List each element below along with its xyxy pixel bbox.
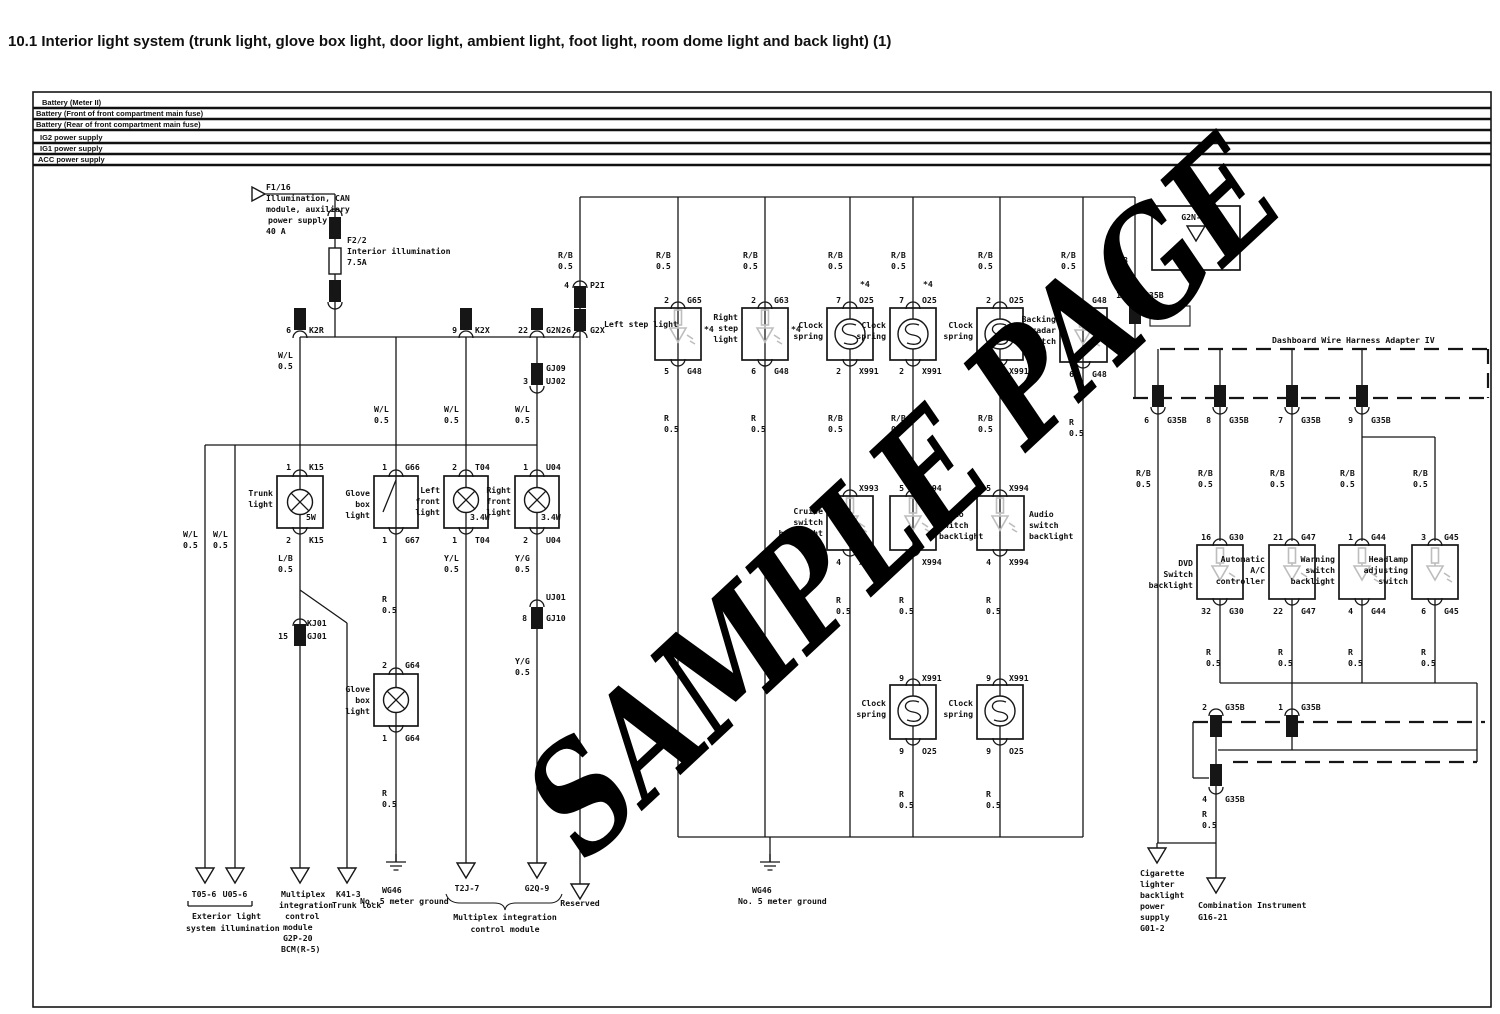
label-comp-dvd-ct: G30 (1229, 532, 1244, 542)
label-conn-kj01-p: 15 (278, 631, 288, 641)
label-wire-sz: 0.5 (664, 424, 679, 434)
label-comp-ac-l3: controller (1216, 576, 1265, 586)
label-conn-g35b6-p: 6 (1144, 415, 1149, 425)
label-comp-right_front-ct: U04 (546, 462, 561, 472)
label-fuses-f22-id: F2/2 (347, 235, 367, 245)
connector-block (531, 607, 543, 629)
label-dest-cig-l5: supply (1140, 912, 1170, 922)
label-conn-gj09-b: UJ02 (546, 376, 566, 386)
label-wire-wl: W/L (278, 350, 293, 360)
label-wire-sz: 0.5 (1340, 479, 1355, 489)
label-comp-cs4-l2: spring (856, 709, 886, 719)
label-comp-cs2-l2: spring (856, 331, 886, 341)
label-comp-step_l-cb: G48 (687, 366, 702, 376)
label-dest-t2j: T2J-7 (455, 883, 480, 893)
offpage-connector-icon (1148, 848, 1166, 863)
label-comp-right_front-l3: light (486, 507, 511, 517)
label-comp-left_front-l2: front (415, 496, 440, 506)
power-feed-arrow-icon (252, 187, 265, 201)
label-comp-trunk-cb: K15 (309, 535, 324, 545)
backlight-led-icon (1427, 548, 1452, 582)
connector-block (1214, 385, 1226, 407)
label-comp-step_l-ct: G65 (687, 295, 702, 305)
label-wire-yg: Y/G (515, 553, 530, 563)
label-comp-step_l-l1: Left step light (604, 319, 678, 329)
label-wire-sz: 0.5 (1136, 479, 1151, 489)
label-wire-r: R (1206, 647, 1211, 657)
label-comp-ac-cb: G47 (1301, 606, 1316, 616)
offpage-connector-icon (196, 868, 214, 883)
label-comp-warning-ct: G44 (1371, 532, 1386, 542)
label-conn-g35b6-n: G35B (1167, 415, 1187, 425)
label-conn-g35b2-n: G35B (1225, 702, 1245, 712)
label-conn-g35b8-p: 8 (1206, 415, 1211, 425)
wire (383, 480, 396, 512)
label-comp-trunk-l1: Trunk (248, 488, 273, 498)
label-fuses-f22-d: Interior illumination (347, 246, 451, 256)
label-comp-left_front-pb: 1 (452, 535, 457, 545)
connector-block (574, 286, 586, 308)
label-dest-combi-l1: Combination Instrument (1198, 900, 1307, 910)
label-wire-yl: Y/L (444, 553, 459, 563)
label-comp-left_front-l1: Left (420, 485, 440, 495)
label-ground-id: WG46 (382, 885, 402, 895)
label-wire-r: R (382, 788, 387, 798)
label-wire-r: R (1348, 647, 1353, 657)
label-comp-step_r-l2: step (718, 323, 738, 333)
label-dest-mux-l4: module (283, 922, 313, 932)
component-box (1412, 545, 1458, 599)
label-comp-right_front-l2: front (486, 496, 511, 506)
label-comp-cs1-l1: Clock (798, 320, 823, 330)
label-comp-step_r-l1: Right (713, 312, 738, 322)
label-fuses-f22-rating: 7.5A (347, 257, 367, 267)
label-wire-sz: 0.5 (444, 415, 459, 425)
label-wire-sz: 0.5 (891, 261, 906, 271)
label-comp-warning-l2: switch (1305, 565, 1335, 575)
label-comp-glove_sw-pt: 1 (382, 462, 387, 472)
label-fuses-f116-d1: Illumination, CAN (266, 193, 350, 203)
label-rails-ig1: IG1 power supply (40, 144, 103, 153)
label-wire-rb: R/B (1413, 468, 1428, 478)
label-dest-cig-l6: G01-2 (1140, 923, 1165, 933)
label-comp-dvd-l3: backlight (1149, 580, 1193, 590)
label-comp-trunk-pb: 2 (286, 535, 291, 545)
label-conn-p2i-n: P2I (590, 280, 605, 290)
fuse-body (329, 248, 341, 274)
label-wire-rb: R/B (656, 250, 671, 260)
label-conn-k2x-n: K2X (475, 325, 490, 335)
label-comp-trunk-l2: light (248, 499, 273, 509)
label-wire-sz: 0.5 (1198, 479, 1213, 489)
label-dest-ext2: system illumination (186, 923, 280, 933)
label-comp-headlamp-l2: adjusting (1364, 565, 1408, 575)
label-fuses-f116-d2: module, auxiliary (266, 204, 350, 214)
label-wire-wl: W/L (444, 404, 459, 414)
label-dest-cig-l2: lighter (1140, 879, 1175, 889)
bulb-lamp-icon (288, 490, 313, 515)
label-comp-audio2-pb: 4 (986, 557, 991, 567)
label-wire-r: R (664, 413, 669, 423)
label-comp-warning-pb: 4 (1348, 606, 1353, 616)
label-note: *4 (860, 279, 870, 289)
label-comp-glove_lamp-cb: G64 (405, 733, 420, 743)
label-fuses-f116-rating: 40 A (266, 226, 286, 236)
label-comp-headlamp-pb: 6 (1421, 606, 1426, 616)
label-dest-mic1: Multiplex integration (453, 912, 557, 922)
label-dest-cig-l1: Cigarette (1140, 868, 1184, 878)
label-comp-glove_lamp-l2: box (355, 695, 370, 705)
label-dest-cig-l4: power (1140, 901, 1165, 911)
label-conn-g35b2-p: 2 (1202, 702, 1207, 712)
label-comp-step_r-cb: G48 (774, 366, 789, 376)
label-conn-k2r-p: 6 (286, 325, 291, 335)
label-wire-sz: 0.5 (828, 261, 843, 271)
label-conn-g35b9-p: 9 (1348, 415, 1353, 425)
label-comp-cs4-l1: Clock (861, 698, 886, 708)
label-conn-g35b7-p: 7 (1278, 415, 1283, 425)
label-conn-gj09-p: 3 (523, 376, 528, 386)
label-wire-sz: 0.5 (1202, 820, 1217, 830)
label-comp-glove_lamp-pb: 1 (382, 733, 387, 743)
label-wire-sz: 0.5 (1278, 658, 1293, 668)
label-comp-glove_lamp-ct: G64 (405, 660, 420, 670)
label-comp-step_r-pb: 6 (751, 366, 756, 376)
label-wire-rb: R/B (978, 250, 993, 260)
label-wire-sz: 0.5 (1421, 658, 1436, 668)
label-comp-ac-l1: Automatic (1221, 554, 1265, 564)
label-comp-cs4-pt: 9 (899, 673, 904, 683)
label-wire-rb: R/B (743, 250, 758, 260)
clock-spring-icon (898, 696, 928, 726)
label-comp-cs5-cb: O25 (1009, 746, 1024, 756)
label-comp-cs1-pb: 2 (836, 366, 841, 376)
offpage-connector-icon (1207, 878, 1225, 893)
label-rails-battery_front: Battery (Front of front compartment main… (36, 109, 204, 118)
label-wire-sz: 0.5 (515, 415, 530, 425)
label-wire-sz: 0.5 (828, 424, 843, 434)
label-wire-r: R (1202, 809, 1207, 819)
bulb-lamp-icon (454, 488, 479, 513)
wiring-diagram: 10.1 Interior light system (trunk light,… (0, 0, 1500, 1014)
label-comp-glove_sw-l1: Glove (345, 488, 370, 498)
connector-block (1356, 385, 1368, 407)
label-wire-sz: 0.5 (444, 564, 459, 574)
bulb-lamp-icon (525, 488, 550, 513)
label-rails-battery_rear: Battery (Rear of front compartment main … (36, 120, 201, 129)
connector-block (1286, 715, 1298, 737)
label-wire-sz: 0.5 (1270, 479, 1285, 489)
label-comp-dvd-l2: Switch (1163, 569, 1193, 579)
label-dest-reserved: Reserved (560, 898, 600, 908)
label-conn-k2x-p: 9 (452, 325, 457, 335)
connector-block (1210, 764, 1222, 786)
label-wire-sz: 0.5 (1206, 658, 1221, 668)
label-dest-trunk_lock-id: K41-3 (336, 889, 361, 899)
bulb-lamp-icon (384, 688, 409, 713)
label-wire-rb: R/B (1136, 468, 1151, 478)
offpage-connector-icon (571, 884, 589, 899)
label-conn-kj01-a: KJ01 (307, 618, 327, 628)
label-wire-sz: 0.5 (558, 261, 573, 271)
label-conn-uj01-b: GJ10 (546, 613, 566, 623)
label-wire-r: R (382, 594, 387, 604)
connector-block (1152, 385, 1164, 407)
label-conn-kj01-b: GJ01 (307, 631, 327, 641)
label-wire-sz: 0.5 (751, 424, 766, 434)
connector-block (1210, 715, 1222, 737)
label-conn-p2i-p: 4 (564, 280, 569, 290)
connector-block (294, 624, 306, 646)
label-wire-rb: R/B (1340, 468, 1355, 478)
label-comp-warning-l1: Warning (1300, 554, 1335, 564)
label-dest-t05: T05-6 (192, 889, 217, 899)
label-wire-sz: 0.5 (1413, 479, 1428, 489)
label-dest-u05: U05-6 (223, 889, 248, 899)
label-conn-gj09-a: GJ09 (546, 363, 566, 373)
connector-block (531, 363, 543, 385)
label-comp-trunk-watt: 5W (306, 512, 316, 522)
label-wire-sz: 0.5 (656, 261, 671, 271)
label-wire-rb: R/B (1198, 468, 1213, 478)
label-comp-left_front-cb: T04 (475, 535, 490, 545)
label-wire-sz: 0.5 (743, 261, 758, 271)
connector-block (1286, 385, 1298, 407)
label-conn-k2r-n: K2R (309, 325, 324, 335)
label-dest-g2q: G2Q-9 (525, 883, 550, 893)
label-conn-g35b7-n: G35B (1301, 415, 1321, 425)
label-comp-right_front-pb: 2 (523, 535, 528, 545)
connector-block (460, 308, 472, 330)
label-wire-rb: R/B (891, 250, 906, 260)
backlight-led-icon (757, 310, 782, 344)
label-comp-dvd-cb: G30 (1229, 606, 1244, 616)
connector-block (294, 308, 306, 330)
label-conn-g35b8-n: G35B (1229, 415, 1249, 425)
label-wire-sz: 0.5 (213, 540, 228, 550)
label-comp-cs4-cb: O25 (922, 746, 937, 756)
offpage-connector-icon (528, 863, 546, 878)
label-comp-trunk-ct: K15 (309, 462, 324, 472)
label-comp-glove_sw-pb: 1 (382, 535, 387, 545)
label-comp-headlamp-ct: G45 (1444, 532, 1459, 542)
label-conn-g35b1-p: 1 (1278, 702, 1283, 712)
brace (446, 894, 562, 910)
label-wire-wl: W/L (515, 404, 530, 414)
label-comp-glove_lamp-l3: light (345, 706, 370, 716)
label-comp-cs1-l2: spring (793, 331, 823, 341)
label-comp-cs1-ct: O25 (859, 295, 874, 305)
ground-icon (386, 854, 406, 870)
label-comp-ac-pt: 21 (1273, 532, 1283, 542)
label-comp-glove_lamp-pt: 2 (382, 660, 387, 670)
label-comp-ac-l2: A/C (1250, 565, 1265, 575)
label-ground-id: WG46 (752, 885, 772, 895)
label-dest-mux-l6: BCM(R-5) (281, 944, 320, 954)
label-dest-mux-l1: Multiplex (281, 889, 325, 899)
label-conn-g35b4-n: G35B (1225, 794, 1245, 804)
label-comp-audio2-cb: X994 (1009, 557, 1029, 567)
clock-spring-icon (985, 696, 1015, 726)
label-wire-rb: R/B (558, 250, 573, 260)
label-comp-glove_sw-ct: G66 (405, 462, 420, 472)
label-comp-cs5-pt: 9 (986, 673, 991, 683)
ground-icon (760, 854, 780, 870)
label-comp-dvd-pt: 16 (1201, 532, 1211, 542)
label-comp-cs5-l2: spring (943, 709, 973, 719)
label-comp-audio2-l2: switch (1029, 520, 1059, 530)
label-wire-rb: R/B (828, 413, 843, 423)
label-wire-sz: 0.5 (382, 799, 397, 809)
clock-spring-icon (898, 319, 928, 349)
label-dest-combi-l2: G16-21 (1198, 912, 1228, 922)
label-wire-sz: 0.5 (278, 564, 293, 574)
label-comp-cs2-l1: Clock (861, 320, 886, 330)
label-wire-sz: 0.5 (374, 415, 389, 425)
label-wire-rb: R/B (828, 250, 843, 260)
label-wire-r: R (986, 595, 991, 605)
label-comp-cs5-pb: 9 (986, 746, 991, 756)
label-wire-sz: 0.5 (899, 800, 914, 810)
label-conn-g35b9-n: G35B (1371, 415, 1391, 425)
label-comp-dvd-l1: DVD (1178, 558, 1193, 568)
label-dest-mux-l3: control (285, 911, 320, 921)
label-comp-trunk-pt: 1 (286, 462, 291, 472)
label-comp-cs1-pt: 7 (836, 295, 841, 305)
label-conn-uj01-a: UJ01 (546, 592, 566, 602)
label-ground-label: No. 5 meter ground (738, 896, 827, 906)
label-comp-cs4-pb: 9 (899, 746, 904, 756)
offpage-connector-icon (338, 868, 356, 883)
label-rails-acc: ACC power supply (38, 155, 106, 164)
label-wire-r: R (986, 789, 991, 799)
connector-block (329, 217, 341, 239)
label-comp-left_front-l3: light (415, 507, 440, 517)
label-comp-cs5-ct: X991 (1009, 673, 1029, 683)
label-note: *4 (923, 279, 933, 289)
label-wire-wl: W/L (183, 529, 198, 539)
label-comp-audio2-l3: backlight (1029, 531, 1073, 541)
label-comp-ac-pb: 22 (1273, 606, 1283, 616)
label-comp-warning-cb: G44 (1371, 606, 1386, 616)
offpage-connector-icon (457, 863, 475, 878)
label-dest-mic2: control module (470, 924, 539, 934)
label-wire-r: R (751, 413, 756, 423)
label-dest-ext1: Exterior light (192, 911, 261, 921)
label-wire-rb: R/B (1270, 468, 1285, 478)
offpage-connector-icon (291, 868, 309, 883)
label-wire-sz: 0.5 (978, 261, 993, 271)
label-comp-headlamp-pt: 3 (1421, 532, 1426, 542)
label-dest-mux-l5: G2P-20 (283, 933, 313, 943)
label-rails-ig2: IG2 power supply (40, 133, 103, 142)
label-conn-g35b1-n: G35B (1301, 702, 1321, 712)
label-comp-headlamp-l1: Headlamp (1369, 554, 1409, 564)
label-conn-g2n-n: G2N (546, 325, 561, 335)
pin-arc-icon (1209, 709, 1223, 716)
connector-block (329, 280, 341, 302)
label-comp-glove_sw-l2: box (355, 499, 370, 509)
label-comp-headlamp-cb: G45 (1444, 606, 1459, 616)
label-fuses-f116-d3: power supply (268, 215, 327, 225)
label-wire-sz: 0.5 (278, 361, 293, 371)
label-comp-step_r-ct: G63 (774, 295, 789, 305)
label-fuses-f116-id: F1/16 (266, 182, 291, 192)
label-note: *4 (704, 324, 714, 334)
label-wire-r: R (1278, 647, 1283, 657)
label-comp-warning-pt: 1 (1348, 532, 1353, 542)
label-comp-step_l-pt: 2 (664, 295, 669, 305)
label-ground-label: No. 5 meter ground (360, 896, 449, 906)
connector-block (574, 309, 586, 331)
label-dest-cig-l3: backlight (1140, 890, 1184, 900)
label-conn-g2n-p: 22 (518, 325, 528, 335)
label-comp-dvd-pb: 32 (1201, 606, 1211, 616)
label-wire-sz: 0.5 (986, 800, 1001, 810)
label-wire-sz: 0.5 (1348, 658, 1363, 668)
label-comp-step_l-pb: 5 (664, 366, 669, 376)
label-comp-cs5-l1: Clock (948, 698, 973, 708)
offpage-connector-icon (226, 868, 244, 883)
label-conn-g2x-n: G2X (590, 325, 605, 335)
label-wire-r: R (1421, 647, 1426, 657)
label-wire-sz: 0.5 (515, 667, 530, 677)
label-comp-cs2-ct: O25 (922, 295, 937, 305)
label-comp-left_front-ct: T04 (475, 462, 490, 472)
connector-block (531, 308, 543, 330)
label-wire-sz: 0.5 (986, 606, 1001, 616)
label-wire-sz: 0.5 (515, 564, 530, 574)
label-comp-glove_lamp-l1: Glove (345, 684, 370, 694)
label-wire-lb: L/B (278, 553, 293, 563)
label-comp-headlamp-l3: switch (1378, 576, 1408, 586)
label-wire-yg: Y/G (515, 656, 530, 666)
label-comp-step_r-l3: light (713, 334, 738, 344)
label-wire-sz: 0.5 (183, 540, 198, 550)
label-title: 10.1 Interior light system (trunk light,… (8, 33, 891, 50)
label-wire-sz: 0.5 (382, 605, 397, 615)
label-dest-mux-l2: integration (279, 900, 333, 910)
label-conn-uj01-p: 8 (522, 613, 527, 623)
label-comp-glove_sw-l3: light (345, 510, 370, 520)
label-comp-audio2-l1: Audio (1029, 509, 1054, 519)
label-comp-right_front-l1: Right (486, 485, 511, 495)
label-comp-right_front-pt: 1 (523, 462, 528, 472)
label-wire-r: R (899, 789, 904, 799)
sample-page-watermark: SAMPLE PAGE (492, 105, 1314, 888)
label-comp-step_r-pt: 2 (751, 295, 756, 305)
label-adapter: Dashboard Wire Harness Adapter IV (1272, 335, 1435, 345)
label-comp-cs4-ct: X991 (922, 673, 942, 683)
label-wire-wl: W/L (374, 404, 389, 414)
label-comp-right_front-watt: 3.4W (541, 512, 561, 522)
label-comp-glove_sw-cb: G67 (405, 535, 420, 545)
label-conn-g35b4-p: 4 (1202, 794, 1207, 804)
label-comp-cs1-cb: X991 (859, 366, 879, 376)
wiring-diagram-page: 10.1 Interior light system (trunk light,… (0, 0, 1500, 1014)
label-comp-warning-l3: backlight (1291, 576, 1335, 586)
label-comp-ac-ct: G47 (1301, 532, 1316, 542)
label-conn-g2x-p: 26 (561, 325, 571, 335)
label-comp-cs2-pt: 7 (899, 295, 904, 305)
label-rails-battery_meter: Battery (Meter II) (42, 98, 102, 107)
label-comp-right_front-cb: U04 (546, 535, 561, 545)
label-wire-wl: W/L (213, 529, 228, 539)
label-comp-left_front-pt: 2 (452, 462, 457, 472)
label-comp-cs2-pb: 2 (899, 366, 904, 376)
